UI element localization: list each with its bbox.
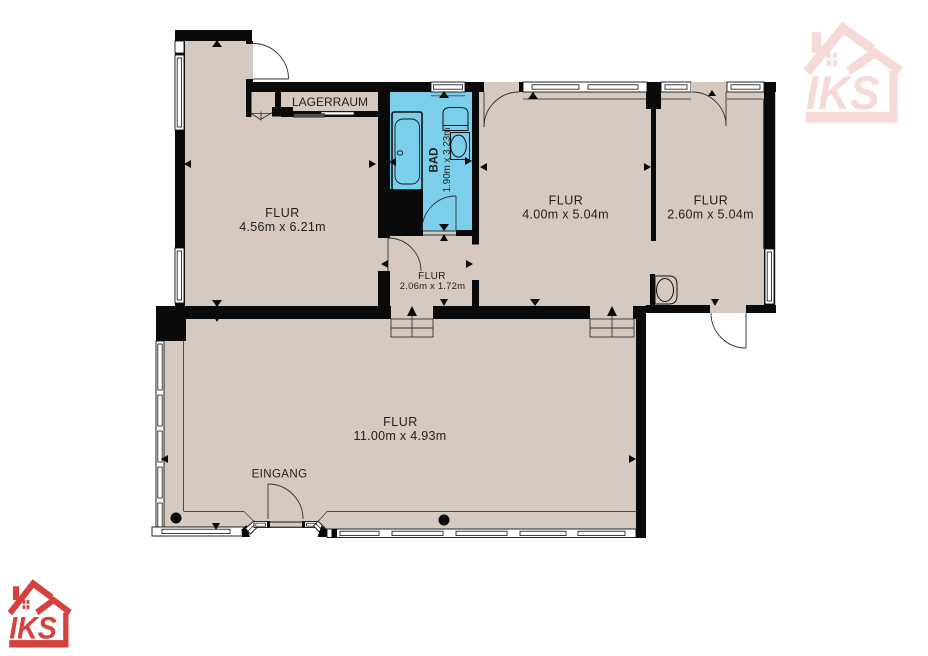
svg-text:4.00m x 5.04m: 4.00m x 5.04m bbox=[522, 208, 609, 222]
svg-text:4.56m x 6.21m: 4.56m x 6.21m bbox=[239, 220, 326, 234]
svg-text:11.00m x 4.93m: 11.00m x 4.93m bbox=[354, 429, 447, 443]
svg-text:LAGERRAUM: LAGERRAUM bbox=[292, 95, 368, 109]
svg-text:EINGANG: EINGANG bbox=[252, 469, 308, 481]
svg-text:FLUR: FLUR bbox=[383, 415, 418, 429]
svg-text:BAD: BAD bbox=[429, 148, 441, 173]
svg-text:FLUR: FLUR bbox=[694, 194, 729, 208]
svg-text:FLUR: FLUR bbox=[549, 194, 584, 208]
svg-text:FLUR: FLUR bbox=[265, 206, 300, 220]
svg-text:2.60m x 5.04m: 2.60m x 5.04m bbox=[667, 208, 754, 222]
svg-text:2.06m x 1.72m: 2.06m x 1.72m bbox=[400, 281, 465, 292]
svg-text:1.90m x 3.23m: 1.90m x 3.23m bbox=[442, 128, 453, 193]
